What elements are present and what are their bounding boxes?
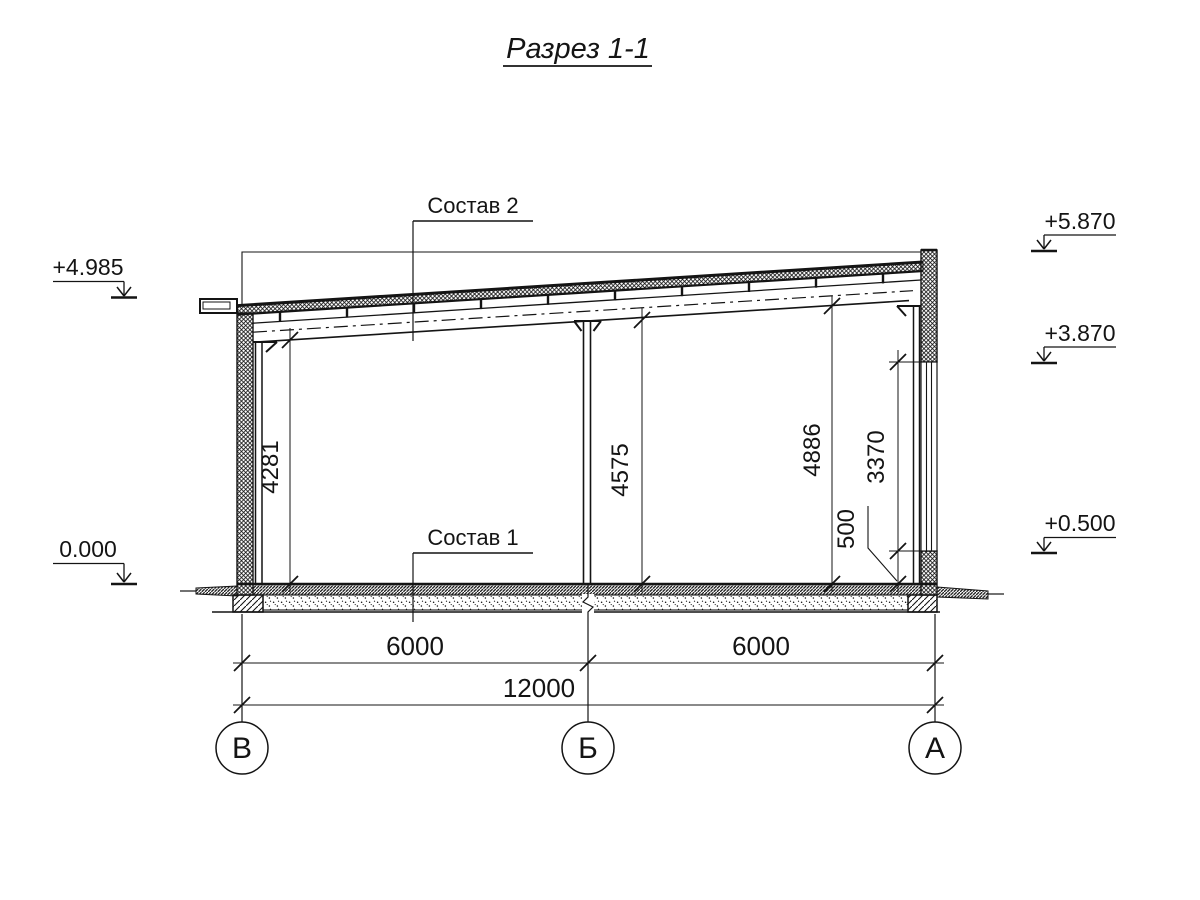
elevation-value: +4.985 <box>53 254 124 280</box>
elevation-window-sill: +0.500 <box>1031 510 1116 553</box>
section-drawing-canvas: Разрез 1-1 <box>0 0 1200 900</box>
left-wall <box>237 313 253 595</box>
drawing-title: Разрез 1-1 <box>503 33 652 66</box>
right-apron <box>937 587 1004 599</box>
sill-dimension-leader <box>868 506 897 581</box>
dimension-text-bay-right: 6000 <box>732 631 790 661</box>
right-wall-lower-hatch <box>921 551 937 595</box>
dimension-text-total-span: 12000 <box>503 673 575 703</box>
axis-label-b: Б <box>578 732 598 765</box>
dimension-text-3370: 3370 <box>863 430 890 483</box>
dimension-left-clear-height: 4281 <box>257 328 298 592</box>
axis-label-a: А <box>925 732 945 765</box>
dimension-text-4886: 4886 <box>799 423 826 476</box>
right-wall-upper-hatch <box>921 250 937 362</box>
dimension-text-500: 500 <box>833 509 860 549</box>
left-column-bracket <box>266 342 277 352</box>
dimension-sill-height: 500 <box>833 506 897 581</box>
elevation-value: +3.870 <box>1045 320 1116 346</box>
drawing-sheet: Разрез 1-1 <box>0 0 1200 900</box>
elevation-right-parapet: +5.870 <box>1031 208 1116 251</box>
roof-assembly <box>200 252 923 342</box>
axis-grid-bubbles: В Б А <box>216 722 961 774</box>
right-wall-window <box>921 362 937 551</box>
dimension-middle-clear-height: 4575 <box>607 308 650 592</box>
right-wall <box>921 250 937 595</box>
right-foundation <box>908 595 937 612</box>
floor-finish-layer <box>253 584 921 595</box>
left-foundation <box>233 595 263 612</box>
middle-column <box>574 321 601 584</box>
elevation-value: +0.500 <box>1045 510 1116 536</box>
elevation-window-top: +3.870 <box>1031 320 1116 363</box>
dimension-text-4281: 4281 <box>257 440 284 493</box>
roof-assembly-label: Состав 2 <box>427 193 518 218</box>
floor-assembly-label: Состав 1 <box>427 525 518 550</box>
drawing-title-text: Разрез 1-1 <box>506 33 650 65</box>
dimension-text-bay-left: 6000 <box>386 631 444 661</box>
dimension-text-4575: 4575 <box>607 443 634 496</box>
axis-label-v: В <box>232 732 252 765</box>
elevation-value: +5.870 <box>1045 208 1116 234</box>
roof-top-line <box>200 262 923 308</box>
left-apron <box>180 586 237 596</box>
eave-fascia <box>200 299 237 313</box>
left-wall-hatch <box>237 313 253 595</box>
elevation-ground-zero: 0.000 <box>53 536 137 584</box>
elevation-value: 0.000 <box>59 536 117 562</box>
right-column <box>897 306 921 584</box>
elevation-left-eave: +4.985 <box>53 254 138 298</box>
roof-insulation-bottom-line <box>237 271 923 315</box>
